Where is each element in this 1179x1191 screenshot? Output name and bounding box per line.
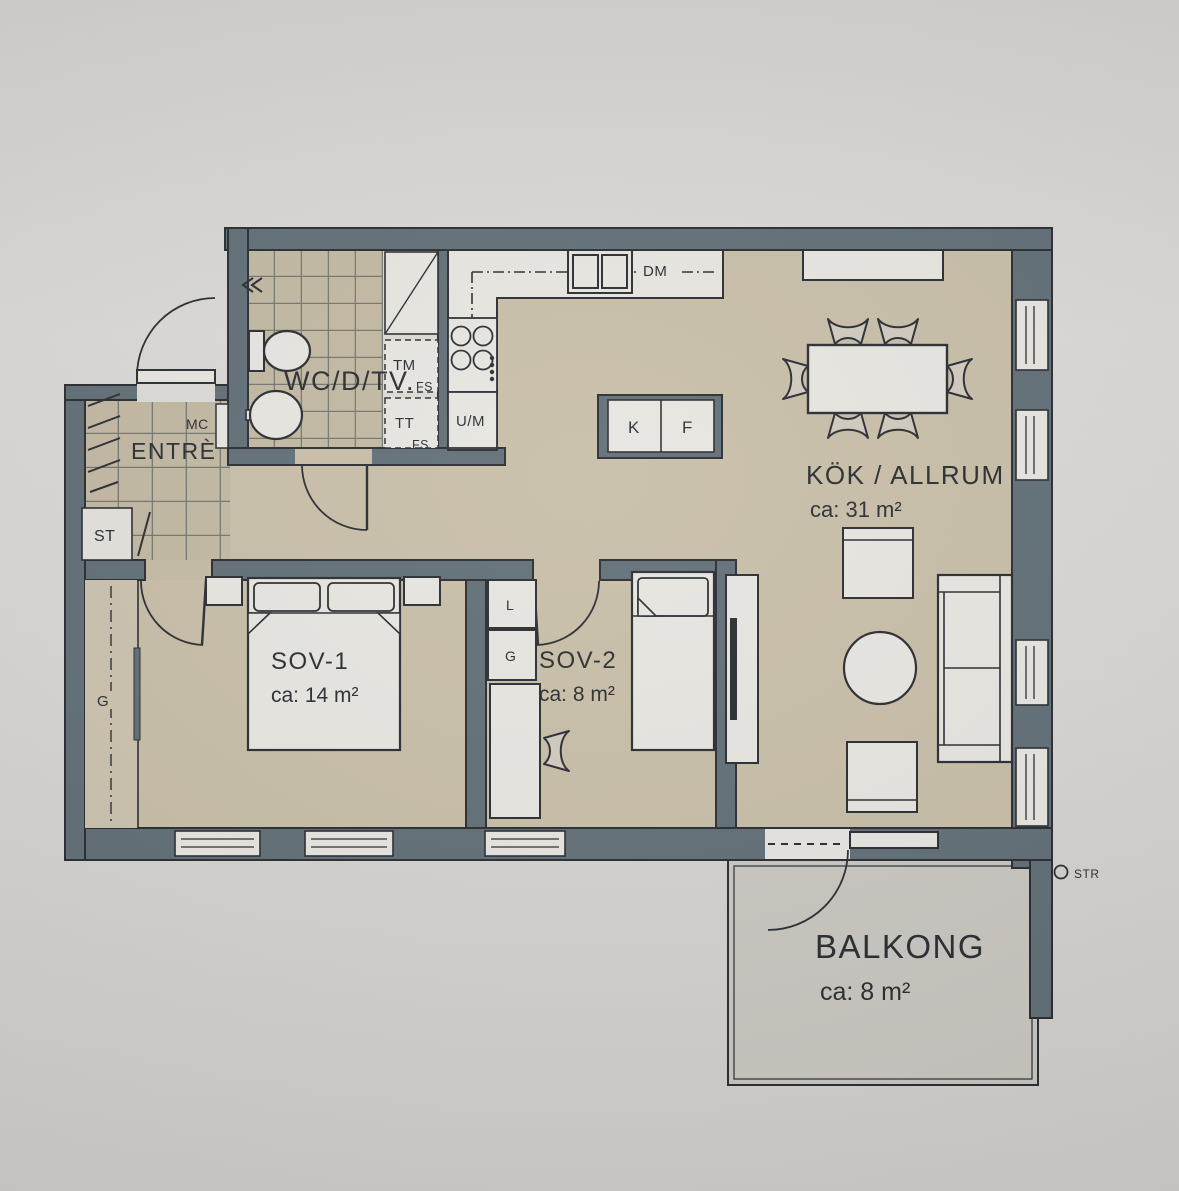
washbasin: [250, 391, 302, 439]
toilet-bowl: [264, 331, 310, 371]
label-tm: TM: [393, 357, 416, 374]
sov1-door-threshold: [145, 560, 212, 580]
window-right-4: [1016, 748, 1048, 826]
single-bed: [632, 572, 714, 750]
wall-wc-left: [228, 228, 248, 465]
toilet-tank: [249, 331, 264, 371]
label-f: F: [682, 418, 693, 437]
stove: [448, 318, 497, 392]
label-mc: MC: [186, 416, 209, 432]
window-right-1: [1016, 300, 1048, 370]
label-kitchen-area: ca: 31 m²: [810, 497, 902, 522]
label-l-closet: L: [506, 597, 514, 613]
label-hall-wardrobe: G: [97, 693, 109, 710]
label-k: K: [628, 418, 640, 437]
window-sov2: [485, 831, 565, 856]
floorplan-drawing: WC/D/TV. ENTRÈ MC ST G TM FS TT FS U/M D…: [0, 0, 1179, 1191]
label-sov1-area: ca: 14 m²: [271, 684, 359, 707]
mc-cabinet: [216, 404, 228, 448]
label-sov2-area: ca: 8 m²: [539, 683, 615, 706]
label-tt: TT: [395, 415, 414, 432]
armchair-2: [847, 742, 917, 812]
nightstand-right: [404, 577, 440, 605]
desk: [490, 684, 540, 818]
wall-balcony-right: [1030, 860, 1052, 1018]
sov2-door-threshold: [533, 560, 600, 580]
label-g-closet: G: [505, 648, 516, 664]
label-str: STR: [1074, 867, 1100, 881]
label-sov2: SOV-2: [539, 647, 617, 674]
tall-cabinet: [385, 252, 438, 334]
label-fs1: FS: [416, 380, 433, 394]
window-right-3: [1016, 640, 1048, 705]
dining-table: [808, 345, 947, 413]
label-kitchen: KÖK / ALLRUM: [806, 460, 1005, 490]
tv-bench: [726, 575, 758, 763]
wall-wc-kitchen: [438, 250, 448, 448]
label-entre: ENTRÈ: [131, 438, 216, 464]
entrance-door: [137, 298, 215, 402]
label-sov1: SOV-1: [271, 648, 349, 675]
fridge-freezer-unit: [598, 395, 722, 458]
sideboard: [803, 250, 943, 280]
corridor-floor: [230, 465, 448, 560]
floorplan-photo: WC/D/TV. ENTRÈ MC ST G TM FS TT FS U/M D…: [0, 0, 1179, 1191]
room-balcony-floor: [728, 860, 1038, 1085]
wall-sov1-sov2: [466, 580, 486, 828]
label-dm: DM: [643, 263, 667, 280]
wall-left: [65, 385, 85, 860]
downpipe-mark: [1055, 866, 1068, 879]
window-sov1-1: [175, 831, 260, 856]
window-sov1-2: [305, 831, 393, 856]
window-right-2: [1016, 410, 1048, 480]
sofa: [938, 575, 1012, 762]
nightstand-left: [206, 577, 242, 605]
label-balcony-area: ca: 8 m²: [820, 978, 910, 1006]
label-um: U/M: [456, 413, 485, 430]
wall-top: [225, 228, 1052, 250]
wall-bedrooms-a: [85, 560, 145, 580]
label-balcony: BALKONG: [815, 928, 985, 965]
label-st: ST: [94, 528, 115, 545]
label-fs2: FS: [412, 438, 429, 452]
coffee-table: [844, 632, 916, 704]
sink-unit: [568, 250, 632, 293]
armchair-1: [843, 528, 913, 598]
